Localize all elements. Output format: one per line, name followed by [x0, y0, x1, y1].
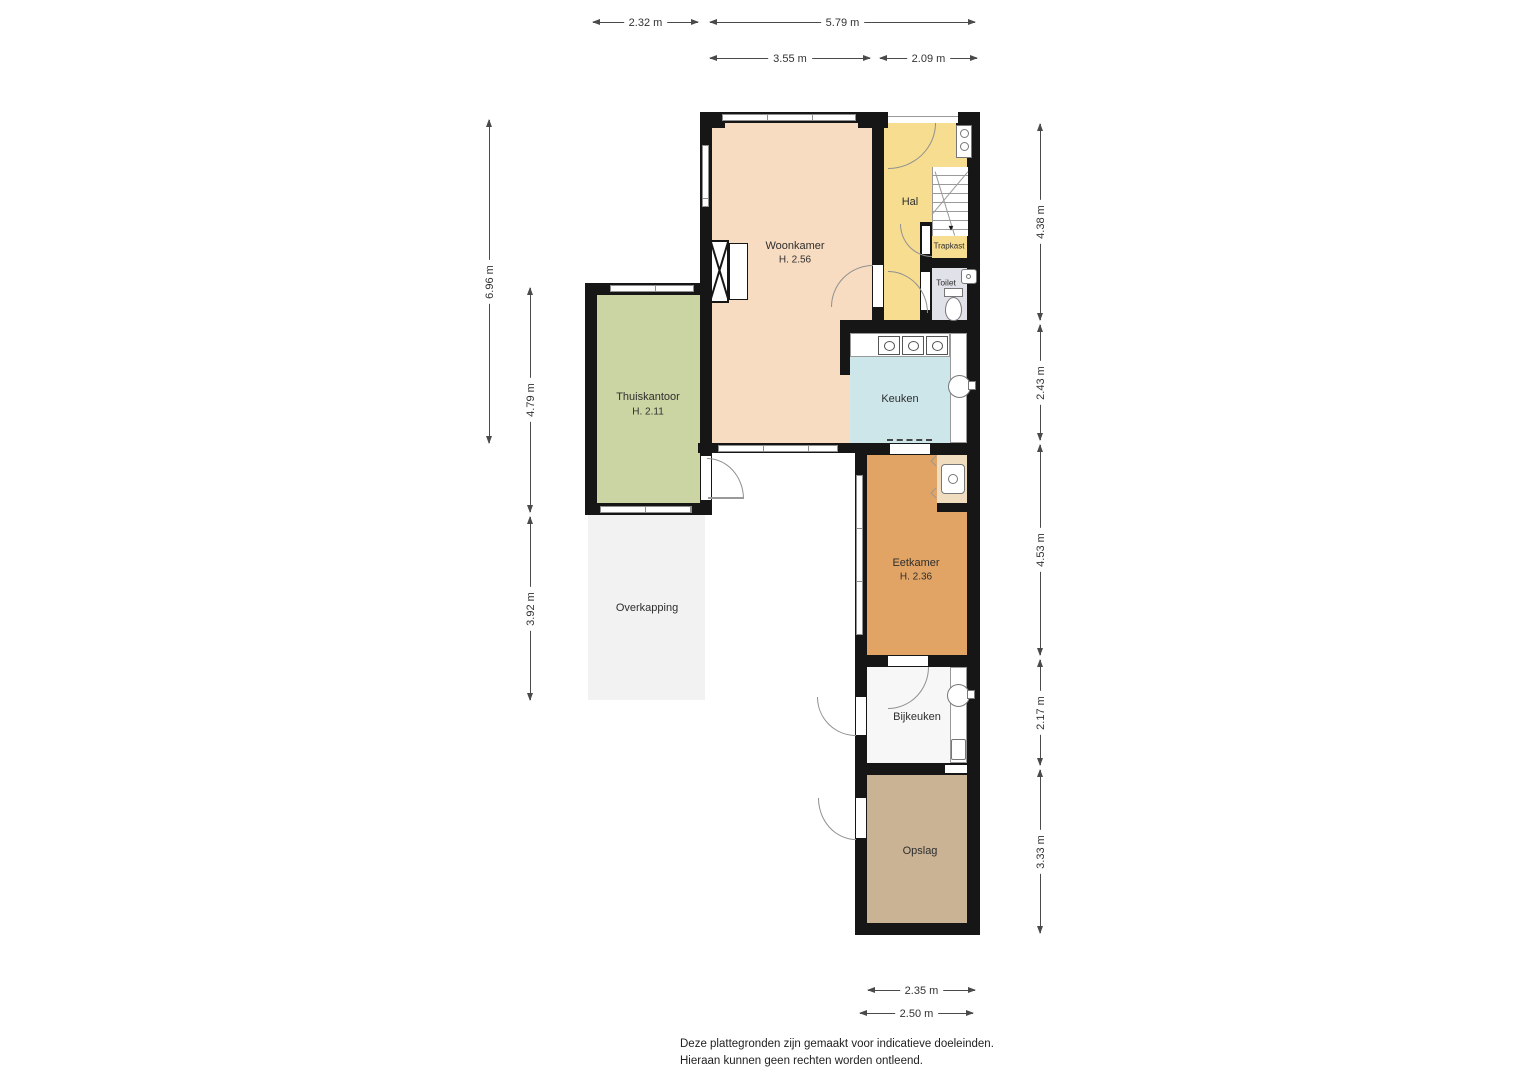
arrowhead-icon	[486, 436, 492, 444]
arrowhead-icon	[691, 19, 699, 25]
dimension-label: 4.79 m	[525, 378, 537, 422]
disclaimer-line-2: Hieraan kunnen geen rechten worden ontle…	[680, 1053, 994, 1070]
dimension-label: 3.55 m	[768, 53, 812, 65]
arrowhead-icon	[1037, 758, 1043, 766]
dimension-line: 5.79 m	[710, 22, 975, 23]
dimension-line: 2.09 m	[880, 58, 977, 59]
chimney-x-line	[711, 242, 729, 303]
dimension-label: 5.79 m	[821, 17, 865, 29]
arrowhead-icon	[1037, 926, 1043, 934]
disclaimer-text: Deze plattegronden zijn gemaakt voor ind…	[680, 1036, 994, 1069]
meter-dial-icon	[960, 142, 969, 151]
window	[610, 285, 694, 292]
wall-niche-bottom	[937, 503, 980, 512]
dimension-label: 2.50 m	[895, 1008, 939, 1020]
arrowhead-icon	[527, 287, 533, 295]
door-arc-bijkeuken-left	[817, 697, 856, 736]
dimension-label: 4.53 m	[1035, 528, 1047, 572]
room-height-woonkamer: H. 2.56	[779, 255, 811, 266]
door-arc-bijkeuken-top	[888, 667, 929, 709]
arrowhead-icon	[966, 1010, 974, 1016]
dimension-line: 3.33 m	[1040, 770, 1041, 933]
window	[718, 445, 838, 452]
wall-keuken-left-stub	[840, 320, 850, 375]
toilet-tank-icon	[944, 288, 963, 297]
room-label-bijkeuken: Bijkeuken	[893, 711, 941, 723]
door-leaf	[708, 497, 744, 499]
arrowhead-icon	[1037, 769, 1043, 777]
chimney-cabinet	[729, 243, 748, 300]
meter-dial-icon	[960, 129, 969, 138]
window	[600, 506, 692, 513]
disclaimer-line-1: Deze plattegronden zijn gemaakt voor ind…	[680, 1036, 994, 1053]
window	[722, 114, 856, 121]
arrowhead-icon	[1037, 433, 1043, 441]
arrowhead-icon	[1037, 324, 1043, 332]
opening-bijkeuken-opslag	[945, 765, 967, 773]
corner-sink-icon	[961, 269, 977, 284]
faucet-icon	[968, 381, 976, 390]
stove-burner-icon	[902, 336, 924, 355]
dimension-line: 2.50 m	[860, 1013, 973, 1014]
dimension-line: 2.17 m	[1040, 660, 1041, 765]
utility-basin-icon	[951, 739, 966, 760]
dimension-label: 2.35 m	[900, 985, 944, 997]
arrowhead-icon	[863, 55, 871, 61]
dimension-label: 3.92 m	[525, 587, 537, 631]
dimension-label: 4.38 m	[1035, 200, 1047, 244]
dimension-label: 2.43 m	[1035, 361, 1047, 405]
stairs-down-arrow-icon: ▼	[947, 225, 955, 234]
arrowhead-icon	[527, 505, 533, 513]
dimension-label: 6.96 m	[484, 260, 496, 304]
door-arc-opslag	[818, 798, 856, 840]
dimension-line: 4.79 m	[530, 288, 531, 512]
window	[856, 475, 863, 635]
opening-keuken-eetkamer	[890, 444, 930, 454]
dimension-label: 3.33 m	[1035, 830, 1047, 874]
dimension-label: 2.17 m	[1035, 691, 1047, 735]
dimension-line: 4.53 m	[1040, 445, 1041, 655]
arrowhead-icon	[709, 19, 717, 25]
arrowhead-icon	[879, 55, 887, 61]
wall-opslag-bottom	[855, 923, 980, 935]
floor-plan-canvas: ▼ Woonkamer H. 2.56 Hal Trap	[0, 0, 1528, 1080]
dimension-label: 2.09 m	[907, 53, 951, 65]
room-label-hal: Hal	[902, 196, 919, 208]
arrowhead-icon	[1037, 444, 1043, 452]
room-label-trapkast: Trapkast	[934, 243, 965, 252]
wall-right-outer	[967, 112, 980, 935]
dimension-line: 6.96 m	[489, 120, 490, 443]
wall-thuiskantoor-left	[585, 283, 597, 515]
wall-toilet-top	[920, 258, 980, 268]
arrowhead-icon	[968, 987, 976, 993]
boiler-dial-icon	[948, 474, 958, 484]
room-label-opslag: Opslag	[903, 845, 938, 857]
door-arc-trapkast	[900, 224, 932, 257]
stove-burner-icon	[926, 336, 948, 355]
arrowhead-icon	[592, 19, 600, 25]
room-label-toilet: Toilet	[936, 278, 956, 287]
dimension-line: 3.55 m	[710, 58, 870, 59]
room-woonkamer-passage	[840, 375, 850, 443]
room-label-overkapping: Overkapping	[616, 602, 678, 614]
stove-burner-icon	[878, 336, 900, 355]
door-opening-opslag-left	[856, 798, 866, 838]
dimension-label: 2.32 m	[624, 17, 668, 29]
room-label-keuken: Keuken	[881, 393, 918, 405]
arrowhead-icon	[527, 516, 533, 524]
arrowhead-icon	[1037, 313, 1043, 321]
arrowhead-icon	[859, 1010, 867, 1016]
sink-drain-icon	[966, 274, 971, 279]
dimension-line: 2.43 m	[1040, 325, 1041, 440]
wall-keuken-top	[840, 320, 980, 333]
dimension-line: 2.35 m	[868, 990, 975, 991]
arrowhead-icon	[1037, 123, 1043, 131]
arrowhead-icon	[486, 119, 492, 127]
door-arc-front	[888, 123, 936, 169]
threshold-line	[888, 116, 958, 117]
toilet-bowl-icon	[945, 297, 962, 321]
dimension-line: 2.32 m	[593, 22, 698, 23]
arrowhead-icon	[1037, 659, 1043, 667]
door-arc-toilet	[888, 271, 928, 313]
arrowhead-icon	[970, 55, 978, 61]
opening-dashed-line	[887, 439, 932, 441]
arrowhead-icon	[1037, 648, 1043, 656]
room-label-eetkamer: Eetkamer	[892, 557, 939, 569]
room-label-woonkamer: Woonkamer	[765, 240, 824, 252]
door-opening-bijkeuken-top	[888, 656, 928, 666]
meter-cabinet-icon	[956, 125, 972, 158]
room-label-thuiskantoor: Thuiskantoor	[616, 391, 680, 403]
room-height-eetkamer: H. 2.36	[900, 572, 932, 583]
arrowhead-icon	[867, 987, 875, 993]
arrowhead-icon	[968, 19, 976, 25]
window	[702, 145, 709, 207]
chimney-icon	[710, 240, 729, 303]
door-opening-bijkeuken-left	[856, 697, 866, 735]
faucet-icon	[967, 690, 975, 699]
boiler-icon	[941, 464, 965, 494]
dimension-line: 3.92 m	[530, 517, 531, 700]
door-opening-front	[888, 112, 958, 123]
door-opening-woonkamer-hal	[873, 265, 883, 307]
door-arc-thuiskantoor	[707, 458, 744, 499]
room-height-thuiskantoor: H. 2.11	[632, 407, 664, 418]
dimension-line: 4.38 m	[1040, 124, 1041, 320]
arrowhead-icon	[527, 693, 533, 701]
arrowhead-icon	[709, 55, 717, 61]
door-arc-woonkamer-hal	[831, 265, 873, 307]
